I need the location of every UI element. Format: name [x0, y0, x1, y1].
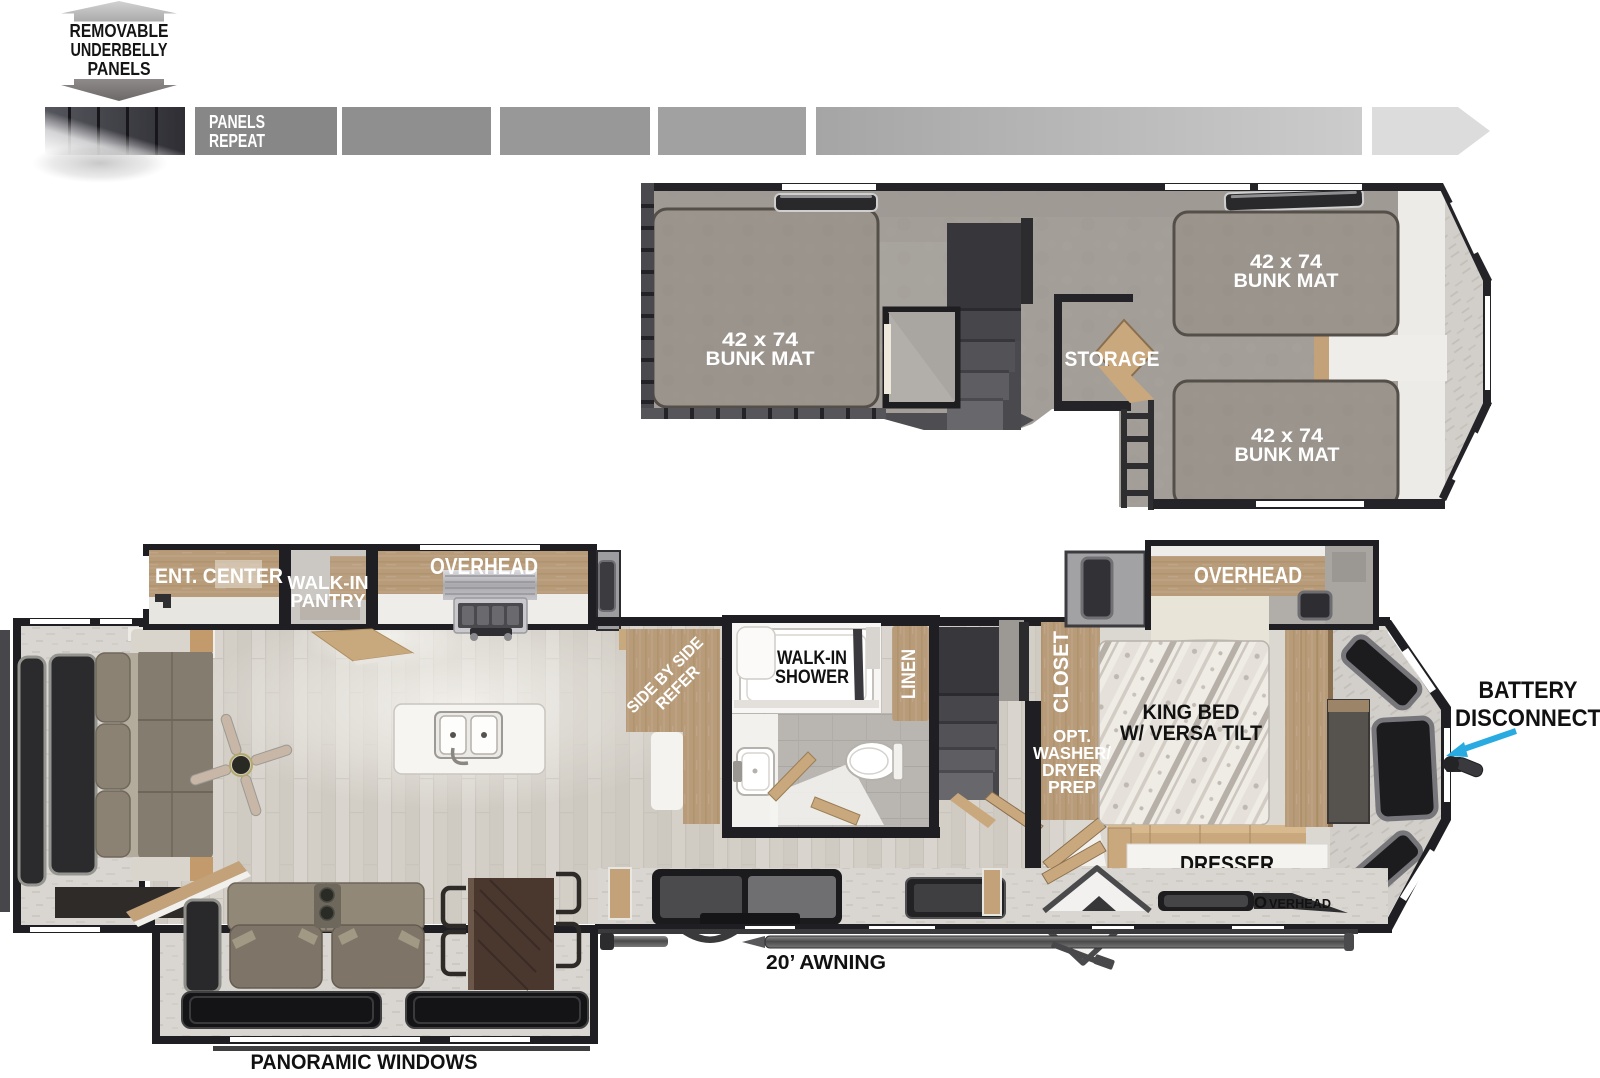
svg-text:LINEN: LINEN — [899, 649, 920, 699]
svg-text:REPEAT: REPEAT — [209, 131, 265, 151]
svg-text:REMOVABLE: REMOVABLE — [70, 21, 169, 41]
svg-text:CLOSET: CLOSET — [1050, 631, 1073, 713]
svg-text:PREP: PREP — [1048, 777, 1096, 797]
svg-text:BUNK MAT: BUNK MAT — [1235, 444, 1340, 466]
svg-text:OVERHEAD: OVERHEAD — [430, 553, 538, 579]
svg-text:DISCONNECT: DISCONNECT — [1455, 705, 1600, 732]
svg-text:PANELS: PANELS — [209, 112, 265, 132]
svg-text:W/ VERSA TILT: W/ VERSA TILT — [1120, 722, 1262, 745]
svg-text:WALK-IN: WALK-IN — [288, 573, 369, 593]
svg-text:20’ AWNING: 20’ AWNING — [766, 952, 886, 974]
svg-text:O: O — [1254, 893, 1267, 912]
svg-text:BUNK MAT: BUNK MAT — [1234, 270, 1339, 292]
svg-text:UNDERBELLY: UNDERBELLY — [71, 40, 168, 60]
svg-text:OVERHEAD: OVERHEAD — [1194, 562, 1302, 588]
svg-text:PANORAMIC WINDOWS: PANORAMIC WINDOWS — [251, 1050, 478, 1073]
svg-text:PANELS: PANELS — [88, 59, 151, 79]
svg-text:PANTRY: PANTRY — [291, 591, 366, 611]
svg-text:SHOWER: SHOWER — [775, 667, 849, 688]
svg-text:BATTERY: BATTERY — [1479, 677, 1578, 704]
svg-text:WALK-IN: WALK-IN — [777, 648, 847, 669]
svg-text:BUNK MAT: BUNK MAT — [706, 348, 815, 370]
svg-text:VERHEAD: VERHEAD — [1269, 896, 1331, 911]
svg-text:KING BED: KING BED — [1143, 701, 1240, 724]
svg-text:ENT. CENTER: ENT. CENTER — [155, 565, 283, 588]
